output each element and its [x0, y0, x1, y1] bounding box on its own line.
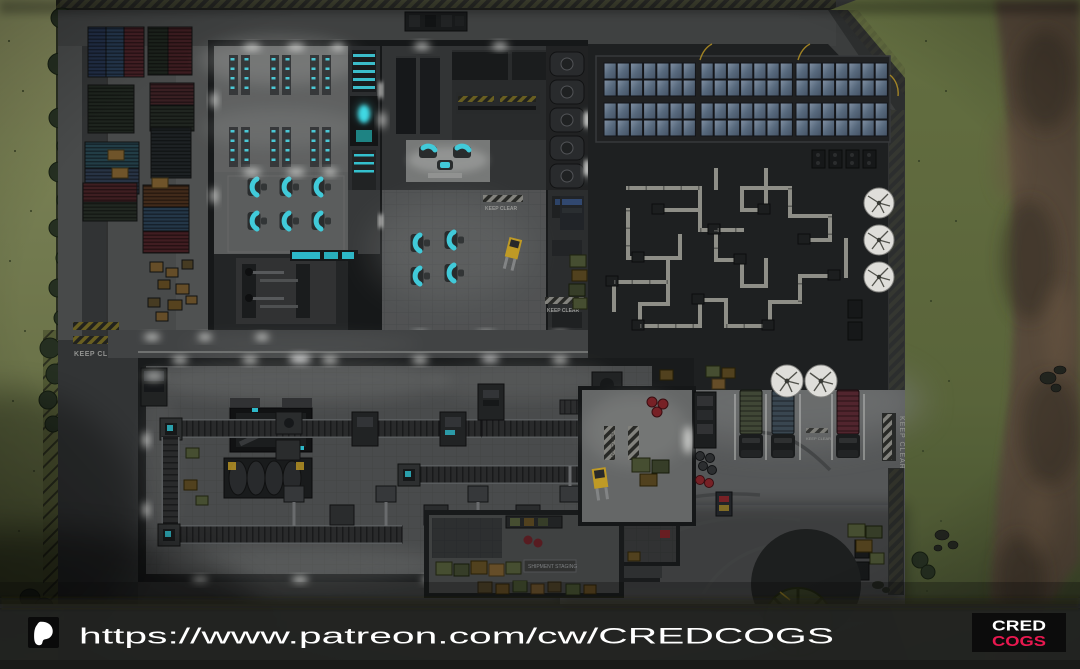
svg-text:https://www.patreon.com/cw/CRE: https://www.patreon.com/cw/CREDCOGS [79, 624, 834, 649]
svg-text:CRED: CRED [992, 618, 1046, 635]
svg-text:COGS: COGS [992, 633, 1046, 650]
